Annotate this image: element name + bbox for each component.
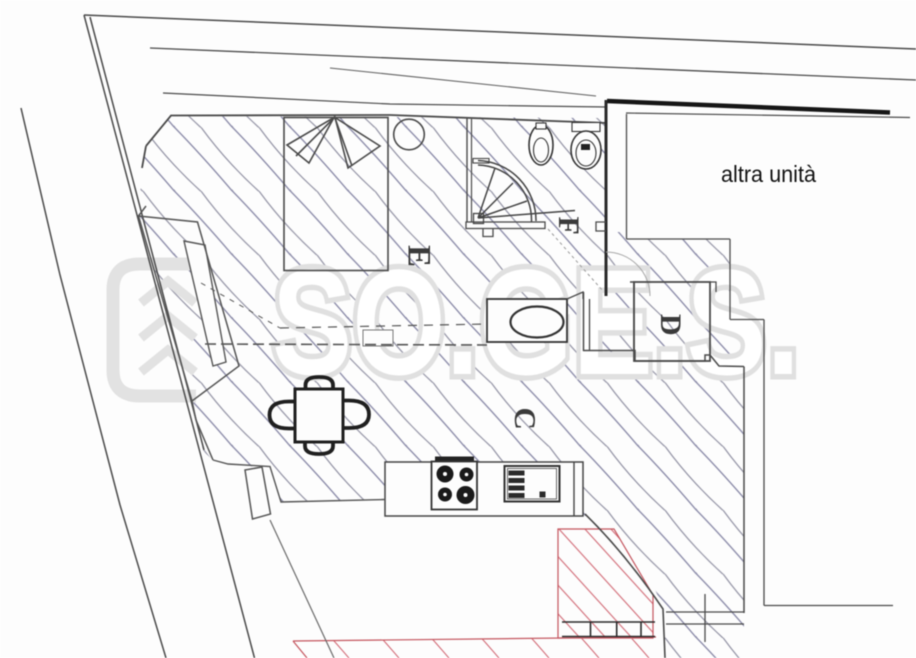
svg-text:F: F bbox=[552, 217, 585, 235]
svg-text:C: C bbox=[508, 408, 543, 430]
svg-text:altra unità: altra unità bbox=[721, 161, 817, 187]
svg-text:E: E bbox=[401, 245, 437, 267]
svg-text:D: D bbox=[654, 314, 687, 336]
